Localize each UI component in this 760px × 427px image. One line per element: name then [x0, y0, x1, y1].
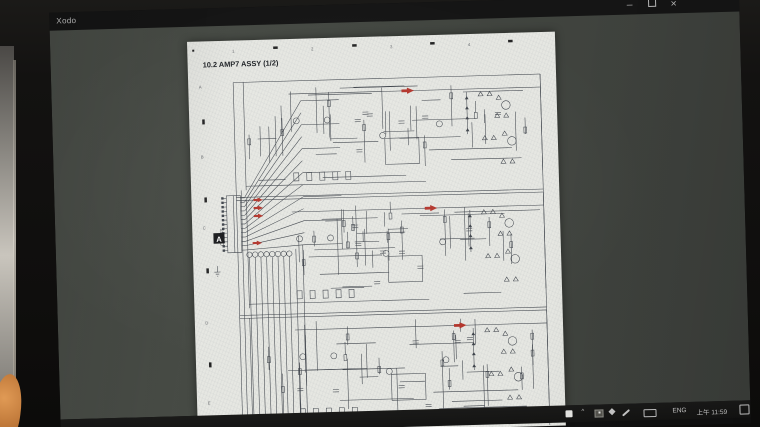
zone-markers-top: 1234 — [192, 40, 513, 55]
svg-text:2: 2 — [311, 46, 314, 51]
svg-text:1: 1 — [232, 49, 235, 54]
svg-text:4: 4 — [468, 42, 471, 47]
minimize-button[interactable]: ─ — [625, 0, 634, 10]
schematic-drawing: 10.2 AMP7 ASSY (1/2)1234ABCDECN2103A — [187, 32, 566, 427]
tray-icon-dot — [598, 411, 600, 413]
window-controls: ─ ✕ — [625, 0, 678, 11]
pdf-viewer-canvas[interactable]: 10.2 AMP7 ASSY (1/2)1234ABCDECN2103A — [50, 11, 751, 419]
channel-block-1 — [233, 74, 543, 191]
taskbar-app-icon[interactable] — [565, 410, 572, 417]
language-indicator[interactable]: ENG — [672, 407, 686, 414]
maximize-button[interactable] — [647, 0, 656, 10]
svg-text:C: C — [203, 225, 206, 230]
svg-text:D: D — [205, 320, 208, 325]
maximize-icon — [647, 0, 655, 7]
photo-stage: Xodo ─ ✕ 10.2 AMP7 ASSY (1/2)1234ABCDECN… — [0, 0, 760, 427]
svg-text:E: E — [208, 400, 211, 405]
action-center-icon[interactable] — [739, 404, 749, 414]
hidden-icons-chevron[interactable]: ^ — [581, 409, 584, 415]
tray-icon[interactable] — [594, 409, 603, 417]
close-button[interactable]: ✕ — [669, 0, 678, 9]
pdf-page[interactable]: 10.2 AMP7 ASSY (1/2)1234ABCDECN2103A — [187, 32, 566, 427]
svg-text:3: 3 — [390, 44, 393, 49]
pen-icon[interactable] — [622, 409, 630, 416]
monitor-screen: Xodo ─ ✕ 10.2 AMP7 ASSY (1/2)1234ABCDECN… — [49, 0, 751, 427]
bezel-edge-highlight — [13, 60, 16, 420]
svg-text:10.2 AMP7 ASSY (1/2): 10.2 AMP7 ASSY (1/2) — [203, 58, 279, 69]
pin-circles — [247, 245, 308, 427]
signal-arrows — [251, 197, 264, 245]
svg-text:A: A — [216, 235, 222, 244]
background-wall — [0, 46, 14, 427]
zone-markers-left: ABCDE — [199, 84, 214, 427]
document-heading: 10.2 AMP7 ASSY (1/2) — [203, 58, 279, 69]
ink-workspace-icon[interactable] — [608, 408, 615, 415]
orange-object — [0, 372, 26, 427]
clock[interactable]: 上午 11:59 — [696, 406, 727, 417]
svg-text:B: B — [201, 154, 204, 159]
window-title: Xodo — [56, 16, 76, 26]
svg-text:A: A — [199, 84, 202, 89]
channel-block-2 — [236, 189, 546, 309]
touch-keyboard-icon[interactable] — [643, 409, 656, 417]
